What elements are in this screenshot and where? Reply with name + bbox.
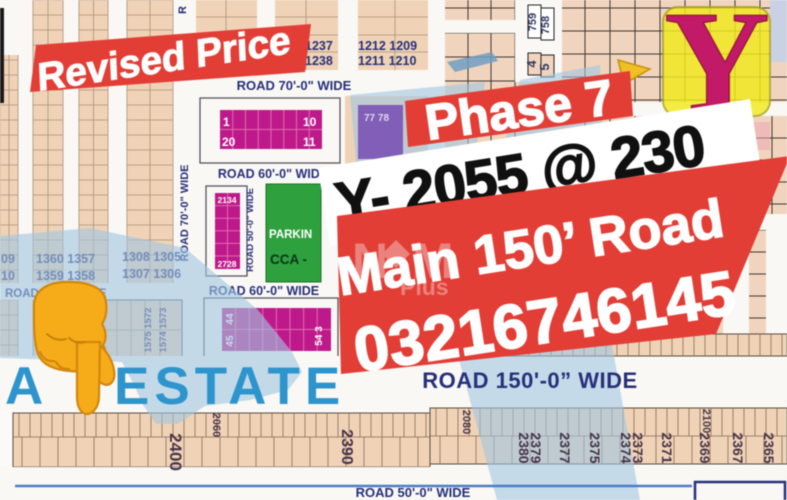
svg-text:1212 1209: 1212 1209	[358, 39, 417, 53]
svg-text:2390: 2390	[338, 429, 355, 465]
svg-text:ROAD 70'-0" WIDE: ROAD 70'-0" WIDE	[237, 78, 352, 93]
svg-text:CCA -: CCA -	[270, 252, 307, 267]
svg-text:ROAD 70'-0" WIDE: ROAD 70'-0" WIDE	[179, 164, 191, 261]
svg-text:759: 759	[527, 13, 539, 31]
svg-text:20: 20	[222, 135, 236, 149]
svg-text:1237: 1237	[305, 39, 333, 53]
svg-text:2100: 2100	[700, 409, 712, 433]
svg-text:2375: 2375	[587, 432, 603, 463]
svg-text:PARKIN: PARKIN	[269, 229, 312, 241]
svg-text:2060: 2060	[210, 413, 222, 437]
svg-text:2377: 2377	[557, 432, 573, 463]
svg-text:1: 1	[223, 115, 230, 129]
svg-text:N: N	[352, 233, 388, 289]
svg-text:2371: 2371	[659, 432, 675, 463]
svg-text:2367: 2367	[730, 432, 746, 463]
svg-text:1211 1210: 1211 1210	[358, 54, 416, 68]
svg-text:1238: 1238	[305, 54, 333, 68]
svg-text:ESTATE: ESTATE	[114, 357, 345, 416]
svg-text:Plus: Plus	[400, 274, 449, 300]
svg-text:11: 11	[303, 135, 316, 149]
svg-text:ROAD 150'-0” WIDE: ROAD 150'-0” WIDE	[422, 368, 637, 393]
svg-text:2728: 2728	[218, 259, 237, 269]
svg-text:758: 758	[540, 16, 552, 34]
svg-text:2379: 2379	[528, 432, 544, 463]
svg-text:54 3: 54 3	[314, 326, 325, 346]
svg-text:2134: 2134	[218, 195, 237, 205]
svg-text:2400: 2400	[166, 433, 185, 471]
svg-text:A: A	[5, 357, 43, 416]
svg-text:77 78: 77 78	[364, 113, 389, 124]
svg-text:2369: 2369	[697, 432, 713, 463]
svg-text:2080: 2080	[460, 410, 472, 434]
svg-text:ROAD 60'-0" WIDE: ROAD 60'-0" WIDE	[218, 167, 328, 181]
svg-text:2365: 2365	[761, 432, 777, 463]
svg-text:R: R	[177, 6, 189, 14]
svg-text:10: 10	[303, 115, 317, 129]
svg-text:5: 5	[537, 63, 552, 70]
svg-text:ROAD 50'-0" WIDE: ROAD 50'-0" WIDE	[245, 188, 256, 272]
svg-text:2373: 2373	[630, 432, 646, 463]
